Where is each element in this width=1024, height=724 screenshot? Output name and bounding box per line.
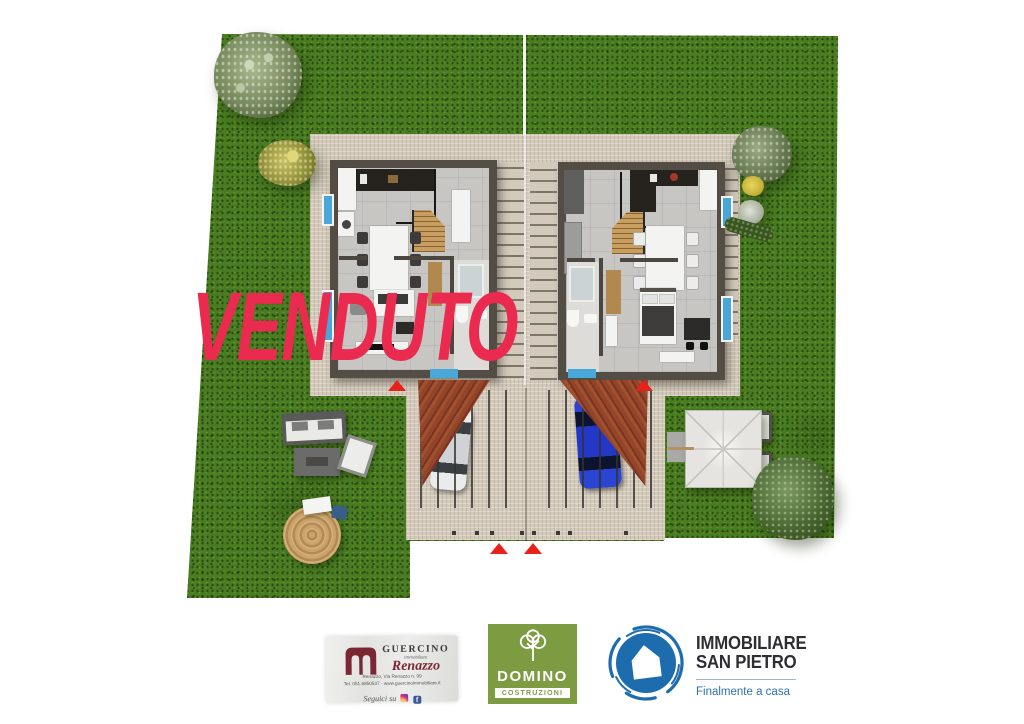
interior-wall <box>339 256 367 260</box>
sanpietro-tagline: Finalmente a casa <box>696 686 815 698</box>
gate-post <box>568 531 572 535</box>
kitchen-sink <box>650 174 657 182</box>
outdoor-sofa <box>281 410 347 445</box>
gazebo-canopy <box>685 410 762 488</box>
sanpietro-line2: SAN PIETRO <box>696 653 806 672</box>
dresser <box>660 352 694 362</box>
window-glass <box>721 296 733 342</box>
gate-post <box>475 531 479 535</box>
guercino-script-name: Renazzo <box>380 660 452 673</box>
shower <box>569 266 595 302</box>
domino-tree-icon <box>488 624 577 666</box>
domino-logo: DOMINO COSTRUZIONI <box>488 624 577 704</box>
flower-cluster <box>742 176 764 196</box>
window-glass <box>322 194 334 226</box>
entrance-marker-icon <box>388 380 406 391</box>
tree-canopy <box>752 456 834 540</box>
guercino-address: Renazzo, Via Renazzo n. 99 <box>341 674 444 680</box>
guercino-contact: Tel. 051.6850537 - www.guercinoimmobilia… <box>341 681 444 687</box>
chair <box>686 254 699 268</box>
toilet <box>567 310 579 327</box>
tree-right <box>732 126 792 182</box>
cushion-blue <box>331 505 348 520</box>
chair <box>410 232 421 244</box>
guercino-name: GUERCINO <box>380 643 452 655</box>
sanpietro-line1: IMMOBILIARE <box>696 634 806 653</box>
gate-post <box>624 531 628 535</box>
sanpietro-logo-text: IMMOBILIARE SAN PIETRO Finalmente a casa <box>696 634 815 698</box>
pillow <box>659 294 675 304</box>
kitchen-counter <box>630 170 698 186</box>
plot-divider-line <box>523 34 526 135</box>
washing-machine <box>338 212 354 236</box>
fridge <box>338 168 356 210</box>
flowers-yellow <box>742 176 764 196</box>
entrance-marker-icon <box>524 543 542 554</box>
facebook-icon: f <box>413 696 421 704</box>
domino-name: DOMINO <box>488 668 577 685</box>
washer-door <box>342 220 351 229</box>
counter-white <box>700 170 717 210</box>
kitchen-sink <box>360 174 367 184</box>
bathroom-wall <box>599 258 603 356</box>
guercino-subtitle: Immobiliare <box>383 655 448 661</box>
kitchen-counter-l <box>630 186 656 212</box>
gate-post <box>490 531 494 535</box>
guercino-follow-label: Seguici su <box>363 694 396 703</box>
sold-watermark: VENDUTO <box>192 278 518 375</box>
chair <box>686 276 699 290</box>
desk-white <box>606 316 617 346</box>
house-right-unit <box>558 162 725 380</box>
entrance-marker-icon <box>490 543 508 554</box>
gate-post <box>556 531 560 535</box>
cutting-board <box>388 175 398 183</box>
bed <box>640 288 676 344</box>
tree-canopy <box>214 32 302 118</box>
instagram-icon <box>401 694 409 702</box>
sofa-white <box>452 190 470 242</box>
outdoor-table <box>294 448 340 476</box>
wardrobe <box>606 270 621 314</box>
domino-subtitle: COSTRUZIONI <box>495 688 570 698</box>
chair <box>686 342 694 350</box>
sink <box>584 314 597 323</box>
entrance-marker-icon <box>635 380 653 391</box>
duvet <box>642 306 674 336</box>
tree-canopy <box>732 126 792 182</box>
interior-wall <box>394 256 452 260</box>
arch-m-icon <box>344 645 378 675</box>
gate-post <box>532 531 536 535</box>
chair <box>700 342 708 350</box>
interior-wall <box>620 258 678 262</box>
tree-sage <box>214 32 302 118</box>
tree-dark-green <box>752 456 834 540</box>
sofa-pillow <box>292 421 308 431</box>
plot-divider-line-patio <box>524 135 526 385</box>
sofa-pillow <box>318 420 334 430</box>
umbrella-arm <box>668 447 694 450</box>
cabinet-gray <box>564 170 584 214</box>
chair <box>633 232 646 246</box>
desk-dark <box>684 318 710 340</box>
floorplan-render: VENDUTO GUERCINO Immobiliare Renazzo Ren… <box>0 0 1024 724</box>
chair <box>686 232 699 246</box>
bush-canopy <box>258 140 316 186</box>
guercino-logo: GUERCINO Immobiliare Renazzo Renazzo, Vi… <box>326 635 459 702</box>
entrance-mat <box>568 369 596 378</box>
pergola-right-unit <box>530 162 557 380</box>
pillow <box>642 294 658 304</box>
table-tray <box>306 457 328 466</box>
sanpietro-house-icon <box>605 622 687 704</box>
bush-yellow <box>258 140 316 186</box>
bed-headboard <box>640 288 676 292</box>
gate-post <box>452 531 456 535</box>
chair <box>357 232 368 244</box>
sanpietro-divider <box>696 679 796 680</box>
gate-post <box>520 531 524 535</box>
plot-divider-line-driveway <box>525 388 527 540</box>
cooking-pot <box>670 173 678 181</box>
